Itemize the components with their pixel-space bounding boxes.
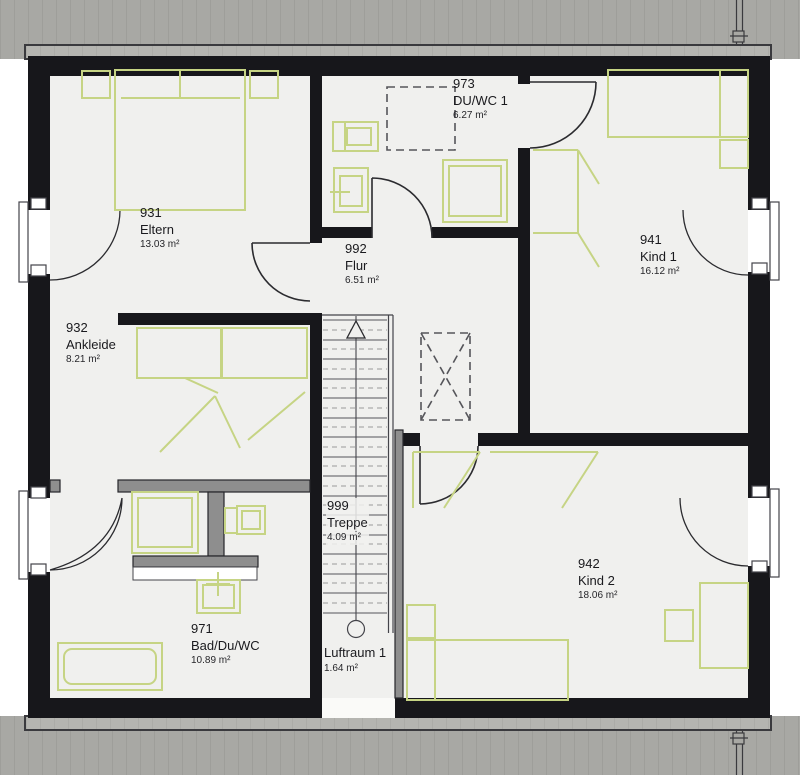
window-frame-bad	[19, 491, 28, 579]
wall-bad-vertical	[208, 492, 224, 556]
hinge-block	[31, 487, 46, 498]
room-name: Luftraum 1	[324, 645, 386, 662]
wall-left	[28, 56, 50, 698]
room-number: 931	[140, 205, 179, 222]
hinge-block	[31, 564, 46, 575]
hinge-block	[31, 265, 46, 276]
room-label-kind2: 942 Kind 2 18.06 m²	[578, 556, 617, 603]
wall-bad-stub	[50, 480, 60, 492]
hinge-block	[752, 561, 767, 572]
wall-bottom	[28, 698, 770, 718]
room-area: 8.21 m²	[66, 354, 116, 367]
room-label-eltern: 931 Eltern 13.03 m²	[140, 205, 179, 252]
wall-ankleide-bad	[118, 480, 310, 492]
room-name: Ankleide	[66, 337, 116, 354]
room-name: Treppe	[326, 515, 369, 532]
opening-luftraum-bottom	[322, 698, 395, 718]
opening-kind2	[420, 433, 478, 446]
room-label-duwc: 973 DU/WC 1 6.27 m²	[453, 76, 508, 123]
hinge-block	[752, 486, 767, 497]
room-name: Bad/Du/WC	[191, 638, 260, 655]
room-number: 932	[66, 320, 116, 337]
room-number: 941	[640, 232, 679, 249]
room-number: 999	[326, 498, 369, 515]
window-frame-kind1	[770, 202, 779, 280]
room-area: 4.09 m²	[326, 532, 369, 545]
floorplan-canvas: 931 Eltern 13.03 m² 932 Ankleide 8.21 m²…	[0, 0, 800, 775]
wall-eltern-ankleide	[118, 313, 310, 325]
room-label-bad: 971 Bad/Du/WC 10.89 m²	[191, 621, 260, 668]
window-gap-bad	[28, 498, 50, 572]
hinge-block	[752, 198, 767, 209]
room-name: Flur	[345, 258, 379, 275]
wall-eltern-flur	[310, 76, 322, 698]
window-frame-eltern	[19, 202, 28, 282]
bath-counter	[133, 567, 257, 580]
wall-stair-kind2	[395, 430, 403, 698]
room-number: 992	[345, 241, 379, 258]
hinge-block	[752, 263, 767, 274]
opening-duwc	[372, 227, 432, 238]
room-label-luftraum: Luftraum 1 1.64 m²	[324, 645, 386, 675]
room-area: 18.06 m²	[578, 590, 617, 603]
room-label-treppe: 999 Treppe 4.09 m²	[326, 498, 369, 545]
room-area: 16.12 m²	[640, 266, 679, 279]
room-name: Eltern	[140, 222, 179, 239]
room-area: 6.27 m²	[453, 110, 508, 123]
room-area: 10.89 m²	[191, 655, 260, 668]
room-name: Kind 2	[578, 573, 617, 590]
room-area: 13.03 m²	[140, 239, 179, 252]
room-area: 1.64 m²	[324, 663, 386, 676]
window-frame-kind2	[770, 489, 779, 577]
room-label-ankleide: 932 Ankleide 8.21 m²	[66, 320, 116, 367]
room-area: 6.51 m²	[345, 275, 379, 288]
floor-plan	[0, 0, 800, 775]
wall-right	[748, 56, 770, 698]
opening-kind1	[518, 84, 530, 148]
hinge-block	[31, 198, 46, 209]
room-name: DU/WC 1	[453, 93, 508, 110]
opening-eltern	[310, 243, 322, 313]
wall-top	[28, 56, 770, 76]
window-gap-eltern	[28, 210, 50, 274]
room-name: Kind 1	[640, 249, 679, 266]
room-number: 971	[191, 621, 260, 638]
room-label-kind1: 941 Kind 1 16.12 m²	[640, 232, 679, 279]
room-label-flur: 992 Flur 6.51 m²	[345, 241, 379, 288]
room-number: 973	[453, 76, 508, 93]
room-number: 942	[578, 556, 617, 573]
window-gap-kind2	[748, 498, 770, 566]
wall-bad-horizontal	[133, 556, 258, 567]
